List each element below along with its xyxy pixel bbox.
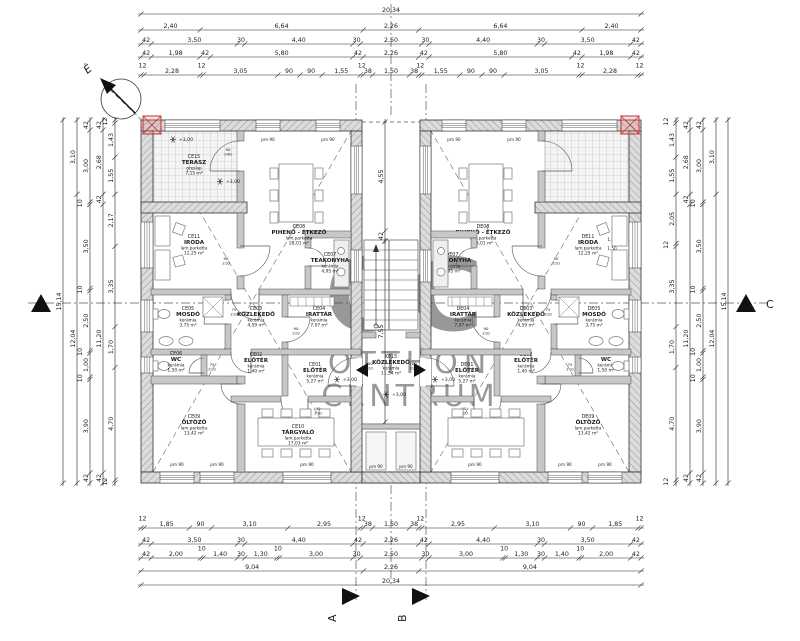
door-size-label: 210 — [365, 366, 373, 371]
dim-label: 3,50 — [83, 239, 90, 253]
dim-label: 3,10 — [525, 521, 539, 528]
dim-label: 1,30 — [514, 551, 528, 558]
chair — [270, 212, 278, 223]
room-area: 28,01 m² — [289, 241, 309, 247]
dim-label: 1,85 — [608, 521, 622, 528]
dim-label: 38 — [364, 521, 372, 528]
sill-label: pm 90 — [300, 462, 314, 467]
room-area: 11,54 m² — [381, 371, 401, 377]
dim-label: 42 — [420, 50, 428, 57]
room-area: 7,15 m² — [185, 171, 202, 177]
dim-label: 4,40 — [476, 37, 490, 44]
interior-wall — [308, 396, 351, 402]
dim-label: 12 — [416, 516, 424, 523]
dim-label: 1,00 — [83, 358, 90, 372]
dim-label: 1,43 — [108, 133, 115, 147]
door-size-label: 210 — [292, 331, 300, 336]
dim-label: 90 — [285, 68, 293, 75]
dim-label: 3,00 — [696, 159, 703, 173]
dim-label: 42 — [354, 50, 362, 57]
dim-label: 1,00 — [696, 358, 703, 372]
dim-label: 12 — [197, 63, 205, 70]
room-area: 5,27 m² — [458, 379, 475, 385]
room-area: 4,59 m² — [517, 323, 534, 329]
chair — [315, 168, 323, 179]
dim-label: 42 — [201, 50, 209, 57]
interior-wall — [237, 213, 244, 248]
desk — [155, 250, 170, 280]
dim-label: 3,50 — [581, 37, 595, 44]
dim-label: 11,20 — [96, 330, 103, 348]
dim-label: 2,50 — [384, 37, 398, 44]
dim-label: 2,26 — [384, 50, 398, 57]
dim-label: 2,28 — [603, 68, 617, 75]
office-chair — [173, 223, 186, 236]
dim-label: 10 — [690, 199, 697, 207]
sill-label: pm 90 — [507, 137, 521, 142]
dim-label: 1,55 — [108, 169, 115, 183]
dim-label: 3,35 — [669, 279, 676, 293]
dim-label: 30 — [421, 551, 429, 558]
dim-label: 7,55 — [378, 324, 385, 338]
dim-label: 90 — [467, 68, 475, 75]
dim-label: 1,70 — [669, 340, 676, 354]
dim-label: 1,30 — [254, 551, 268, 558]
floor-plan-page: OC OTTHON CENTRUM CE15TERASZgreslap7,15 … — [0, 0, 800, 641]
interior-wall — [259, 289, 351, 295]
dim-label: 2,50 — [83, 314, 90, 328]
dim-label: 4,70 — [669, 417, 676, 431]
dim-label: 1,40 — [555, 551, 569, 558]
dim-label: 10 — [77, 286, 84, 294]
toilet — [158, 310, 170, 319]
room-material: lam.parketta — [181, 246, 208, 251]
interior-wall — [251, 349, 361, 355]
dim-label: 3,50 — [696, 239, 703, 253]
room-material: lam.parketta — [285, 436, 312, 441]
dim-label: 38 — [364, 68, 372, 75]
interior-wall — [305, 266, 311, 289]
dim-label: 4,40 — [292, 37, 306, 44]
level-label: +3,00 — [226, 179, 240, 185]
room-area: 7,07 m² — [454, 323, 471, 329]
sill-label: pm 90 — [210, 462, 224, 467]
dim-label: 42 — [683, 121, 690, 129]
dim-label: 3,10 — [70, 150, 77, 164]
dim-label: 20,34 — [382, 578, 400, 585]
room-material: kerámia — [455, 318, 472, 323]
dim-label: 15,14 — [56, 292, 63, 310]
dim-label: 10 — [77, 348, 84, 356]
dim-label: 30 — [421, 37, 429, 44]
dim-label: 1,50 — [384, 521, 398, 528]
dim-label: 10 — [690, 286, 697, 294]
dim-label: 3,00 — [309, 551, 323, 558]
room-material: kerámia — [168, 363, 185, 368]
desk — [155, 216, 170, 246]
dim-label: 12 — [636, 516, 644, 523]
dim-label: 20,34 — [382, 7, 400, 14]
basin — [159, 337, 173, 346]
section-a-arrow — [342, 588, 360, 605]
room-material: kerámia — [180, 318, 197, 323]
sill-label: pm 90 — [261, 137, 275, 142]
room-area: 12,25 m² — [184, 251, 204, 257]
dim-label: 90 — [196, 521, 204, 528]
dim-label: 3,90 — [83, 419, 90, 433]
dim-label: 1,98 — [599, 50, 613, 57]
dim-label: 2,95 — [451, 521, 465, 528]
dim-label: 42 — [142, 551, 150, 558]
sill-label: pm 90 — [598, 462, 612, 467]
dim-label: 9,04 — [523, 564, 537, 571]
dim-label: 5,80 — [493, 50, 507, 57]
dim-label: 30 — [353, 551, 361, 558]
room-area: 1,50 m² — [597, 368, 614, 374]
interior-wall — [151, 289, 231, 295]
dim-label: 2,00 — [169, 551, 183, 558]
dim-label: 15,14 — [721, 292, 728, 310]
sill-label: pm 90 — [321, 137, 335, 142]
dim-label: 30 — [537, 37, 545, 44]
dim-label: 10 — [690, 348, 697, 356]
dim-label: 10 — [274, 546, 282, 553]
dim-label: 1,40 — [213, 551, 227, 558]
dim-label: 12 — [102, 117, 109, 125]
dim-label: 12 — [138, 516, 146, 523]
room-area: 13,42 m² — [184, 431, 204, 437]
door-size-label: 210 — [566, 367, 574, 372]
dim-label: 42 — [696, 121, 703, 129]
dim-label: 42 — [354, 537, 362, 544]
sill-label: pm 90 — [558, 462, 572, 467]
office-chair — [173, 255, 185, 267]
room-area: 13,42 m² — [578, 431, 598, 437]
dim-label: 2,26 — [384, 537, 398, 544]
room-material: greslap — [186, 166, 202, 171]
room-material: kerámia — [307, 374, 324, 379]
room-area: 1,40 m² — [247, 369, 264, 375]
section-b-arrow — [412, 588, 430, 605]
section-c-label: C — [766, 298, 774, 311]
dim-label: 3,90 — [696, 419, 703, 433]
interior-wall — [225, 295, 231, 300]
interior-wall — [151, 349, 231, 355]
dim-label: 2,68 — [683, 155, 690, 169]
room-material: kerámia — [248, 318, 265, 323]
chair — [281, 449, 292, 457]
room-material: kerámia — [248, 364, 265, 369]
dim-label: 11,20 — [683, 330, 690, 348]
level-label: +3,00 — [343, 377, 357, 383]
floor-plan-canvas: OC OTTHON CENTRUM CE15TERASZgreslap7,15 … — [0, 0, 800, 641]
dim-label: 12,04 — [709, 330, 716, 348]
dim-label: 42 — [420, 537, 428, 544]
sink — [338, 248, 345, 255]
dim-label: 3,50 — [187, 37, 201, 44]
dim-label: 2,17 — [108, 213, 115, 227]
room-area: 12,25 m² — [578, 251, 598, 257]
sill-label: pm 90 — [170, 462, 184, 467]
dim-label: 30 — [537, 551, 545, 558]
dim-label: 4,55 — [378, 169, 385, 183]
dim-label: 3,10 — [709, 150, 716, 164]
dim-label: 42 — [683, 195, 690, 203]
room-area: 17,03 m² — [288, 441, 308, 447]
interior-wall — [237, 376, 245, 384]
door-size-label: 210 — [482, 331, 490, 336]
dim-label: 4,70 — [108, 417, 115, 431]
dim-label: 3,00 — [459, 551, 473, 558]
interior-wall — [282, 355, 288, 396]
dim-label: 1,55 — [334, 68, 348, 75]
dim-label: 90 — [307, 68, 315, 75]
door-size-label: 210 — [230, 312, 238, 317]
dim-label: 42 — [378, 232, 385, 240]
dim-label: 1,50 — [384, 68, 398, 75]
dim-label: 42 — [632, 37, 640, 44]
dim-label: 12 — [663, 241, 670, 249]
door-size-label: 240 — [224, 152, 232, 157]
room-material: kerámia — [459, 374, 476, 379]
dim-label: 2,50 — [384, 551, 398, 558]
dim-label: 90 — [489, 68, 497, 75]
toilet-tank — [153, 309, 158, 319]
interior-wall — [231, 396, 281, 402]
dim-label: 42 — [632, 551, 640, 558]
room-material: kerámia — [311, 318, 328, 323]
chair — [319, 449, 330, 457]
chair — [300, 409, 311, 417]
section-a-label: A — [326, 614, 339, 622]
dim-label: 3,35 — [108, 279, 115, 293]
room-area: 1,40 m² — [517, 369, 534, 375]
door-size-label: 210 — [544, 312, 552, 317]
dim-label: 42 — [683, 474, 690, 482]
interior-wall — [282, 342, 288, 349]
dim-label: 42 — [696, 474, 703, 482]
level-label: +3,00 — [392, 392, 406, 398]
dim-label: 42 — [573, 50, 581, 57]
dim-label: 10 — [77, 374, 84, 382]
section-b-label: B — [396, 614, 409, 622]
level-label: +3,00 — [179, 137, 193, 143]
dim-label: 30 — [237, 537, 245, 544]
room-area: 5,27 m² — [306, 379, 323, 385]
room-area: 3,75 m² — [179, 323, 196, 329]
sill-label: pm 90 — [447, 137, 461, 142]
room-material: lam.parketta — [575, 426, 602, 431]
dim-label: 10 — [500, 546, 508, 553]
dim-label: 2,50 — [696, 314, 703, 328]
door-size-label: 210 — [314, 411, 322, 416]
dim-label: 2,05 — [669, 212, 676, 226]
interior-wall — [225, 324, 231, 349]
dim-label: 1,55 — [434, 68, 448, 75]
dim-label: 1,70 — [108, 340, 115, 354]
dim-label: 42 — [142, 50, 150, 57]
dim-label: 42 — [632, 50, 640, 57]
dim-label: 42 — [142, 37, 150, 44]
dim-label: 10 — [198, 546, 206, 553]
dim-label: 3,00 — [83, 159, 90, 173]
dim-label: 12 — [663, 117, 670, 125]
dim-label: 4,40 — [292, 537, 306, 544]
dim-label: 3,50 — [581, 537, 595, 544]
north-label: É — [81, 62, 95, 76]
dim-label: 3,10 — [243, 521, 257, 528]
dim-label: 42 — [632, 537, 640, 544]
interior-wall — [282, 295, 288, 317]
chair — [300, 449, 311, 457]
archive-shelf — [290, 297, 334, 306]
dim-label: 3,05 — [233, 68, 247, 75]
dim-label: 2,00 — [599, 551, 613, 558]
dim-label: 2,28 — [165, 68, 179, 75]
toilet-tank — [153, 361, 158, 371]
dim-label: 9,04 — [245, 564, 259, 571]
dim-label: 42 — [96, 195, 103, 203]
interior-wall — [237, 276, 244, 289]
dim-label: 12,04 — [70, 330, 77, 348]
dim-label: 10 — [77, 199, 84, 207]
chair — [281, 409, 292, 417]
dim-label: 12 — [577, 63, 585, 70]
dim-label: 5,80 — [275, 50, 289, 57]
room-material: lam.parketta — [181, 426, 208, 431]
dim-label: 2,95 — [317, 521, 331, 528]
dim-label: 42 — [83, 474, 90, 482]
dim-label: 3,50 — [187, 537, 201, 544]
interior-wall — [237, 404, 245, 472]
dim-label: 1,55 — [669, 169, 676, 183]
room-material: lam.parketta — [286, 236, 313, 241]
dim-label: 2,40 — [163, 23, 177, 30]
dim-label: 12 — [663, 478, 670, 486]
dim-label: 3,05 — [535, 68, 549, 75]
dim-label: 6,64 — [493, 23, 507, 30]
chair — [262, 449, 273, 457]
interior-wall — [237, 171, 244, 202]
dim-label: 42 — [142, 537, 150, 544]
dim-label: 30 — [353, 37, 361, 44]
room-material: kerámia — [586, 318, 603, 323]
chair — [315, 212, 323, 223]
dim-label: 12 — [416, 63, 424, 70]
dim-label: 90 — [578, 521, 586, 528]
chair — [262, 409, 273, 417]
door-size-label: 210 — [208, 367, 216, 372]
dim-label: 12 — [138, 63, 146, 70]
room-area: 1,50 m² — [167, 368, 184, 374]
room-area: 3,75 m² — [585, 323, 602, 329]
dining-table — [279, 164, 313, 222]
dim-label: 12 — [636, 63, 644, 70]
door-size-label: 210 — [222, 261, 230, 266]
dim-label: 2,26 — [384, 23, 398, 30]
interior-wall — [151, 376, 237, 384]
dim-label: 10 — [576, 546, 584, 553]
stair — [364, 240, 418, 330]
sill-label: pm 90 — [369, 464, 383, 469]
room-material: kerámia — [518, 364, 535, 369]
room-area: 7,07 m² — [310, 323, 327, 329]
dim-label: 42 — [83, 121, 90, 129]
dim-label: 1,85 — [160, 521, 174, 528]
sill-label: pm 90 — [468, 462, 482, 467]
interior-wall — [362, 332, 376, 338]
interior-wall — [237, 131, 244, 141]
dim-label: 2,68 — [96, 155, 103, 169]
dim-label: 2,26 — [384, 564, 398, 571]
dim-label: 1,43 — [669, 133, 676, 147]
dim-label: 1,98 — [169, 50, 183, 57]
room-area: 4,59 m² — [247, 323, 264, 329]
door-swing — [240, 246, 270, 276]
dim-label: 30 — [237, 551, 245, 558]
dim-label: 4,40 — [476, 537, 490, 544]
dim-label: 2,40 — [604, 23, 618, 30]
room-material: lam.parketta — [575, 246, 602, 251]
dim-label: 30 — [537, 537, 545, 544]
exterior-wall — [141, 202, 247, 213]
chair — [270, 190, 278, 201]
dim-label: 6,64 — [275, 23, 289, 30]
room-material: kerámia — [322, 264, 339, 269]
sill-label: pm 90 — [399, 464, 413, 469]
chair — [315, 190, 323, 201]
chair — [270, 168, 278, 179]
dim-label: 12 — [102, 478, 109, 486]
dim-label: 30 — [237, 37, 245, 44]
dim-label: 10 — [690, 374, 697, 382]
room-area: 4,95 m² — [321, 269, 338, 275]
basin — [179, 337, 193, 346]
